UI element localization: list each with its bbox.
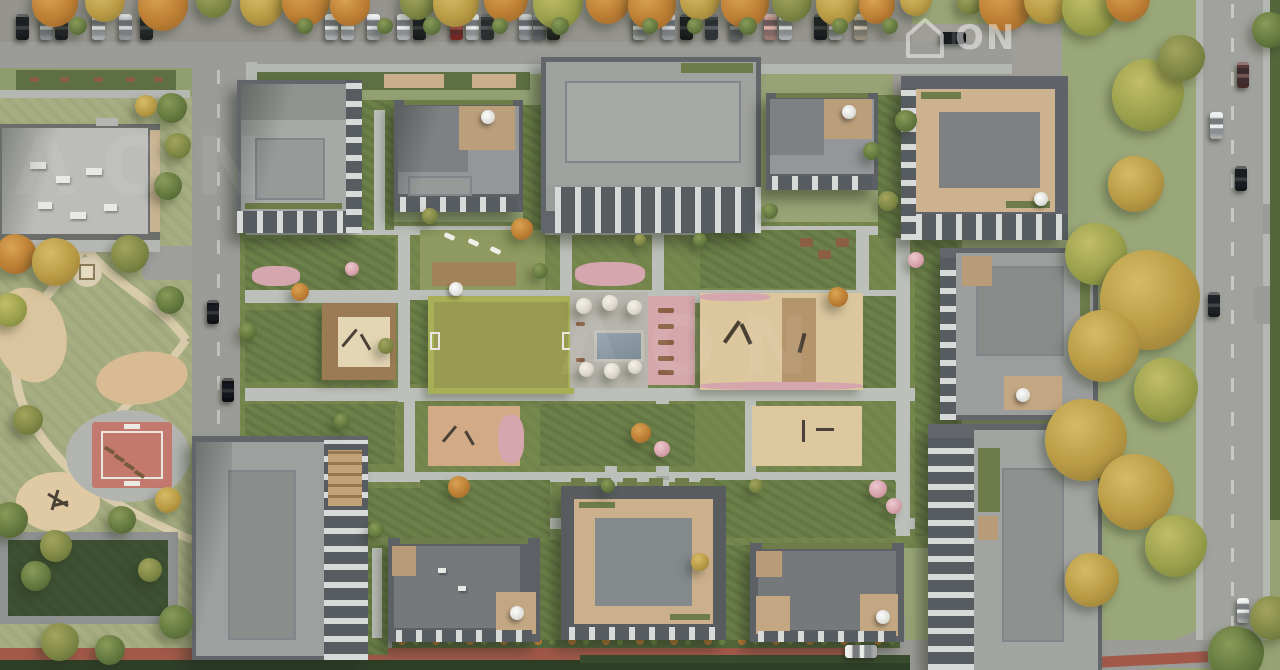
roof-terrace: [978, 516, 998, 540]
roof-planters: [762, 543, 892, 549]
building-northeast-tower: [901, 76, 1068, 240]
parasol: [510, 606, 524, 620]
gap-garden: [523, 105, 541, 230]
roof-terrace-garden: [978, 448, 1000, 512]
planter-box: [836, 238, 849, 247]
sandbox: [80, 265, 94, 279]
roof-dark: [595, 518, 692, 606]
court-goal: [124, 481, 140, 486]
building-north-b: [766, 93, 878, 190]
tree: [1252, 12, 1280, 48]
hvac-unit: [70, 212, 86, 219]
mini-goal: [430, 332, 440, 350]
play-equipment: [464, 430, 475, 445]
play-equipment: [442, 425, 457, 442]
car: [1237, 62, 1249, 88]
balcony-wood: [328, 450, 362, 506]
garden-bed: [700, 230, 856, 288]
roof-vent: [458, 586, 466, 591]
facade-south: [400, 197, 517, 212]
east-hedge-strip: [1270, 0, 1280, 520]
roof-terrace: [756, 596, 790, 634]
central-lawn: [428, 296, 574, 394]
roof-dark: [939, 112, 1040, 188]
garden-bed: [540, 404, 695, 466]
roof-terrace: [1004, 376, 1062, 410]
watermark-tile: ΛΟΝ: [14, 120, 289, 213]
garden-bed: [420, 480, 550, 514]
bench: [94, 77, 103, 82]
ring-plants: [921, 92, 961, 99]
car: [222, 378, 234, 402]
flower-bed: [498, 415, 524, 463]
roof-shadow: [398, 106, 448, 194]
car: [1237, 598, 1249, 623]
car: [119, 14, 132, 40]
roof-planters: [404, 100, 513, 105]
facade-south: [396, 630, 532, 642]
watermark-text: ON: [955, 18, 1016, 58]
roof-planters: [571, 478, 716, 486]
bench: [154, 77, 163, 82]
car: [397, 14, 410, 40]
sand-playground-se: [752, 406, 862, 466]
bench: [60, 77, 69, 82]
roof-inset: [228, 470, 296, 640]
building-north-a: [394, 100, 523, 212]
gap-path: [374, 110, 385, 230]
courtyard-path: [652, 226, 664, 296]
ring-plants: [579, 502, 615, 508]
car: [1208, 292, 1220, 317]
roof-vent: [438, 568, 446, 573]
roof-dark: [770, 99, 824, 155]
court-goal: [124, 424, 140, 429]
watermark-tile: ΛΟΝ: [560, 300, 835, 393]
street-hedge-row: [16, 70, 176, 90]
roof-shadow: [196, 442, 232, 656]
car: [1235, 166, 1247, 191]
courtyard-path: [398, 226, 410, 402]
roof-planters: [681, 63, 753, 73]
wood-deck: [432, 262, 516, 286]
flower-bed: [252, 266, 300, 286]
car: [16, 14, 29, 40]
roof-inset: [565, 81, 741, 163]
bench: [126, 77, 135, 82]
courtyard-path: [560, 226, 572, 296]
roof-planters: [400, 538, 528, 544]
parasol: [1034, 192, 1048, 206]
building-southwest-tower: [192, 436, 368, 660]
facade-west: [940, 258, 956, 420]
building-north-main: [541, 57, 761, 233]
gap-path: [372, 548, 382, 638]
car: [519, 14, 532, 40]
parasol: [1016, 388, 1030, 402]
facade-south: [237, 211, 346, 233]
facade-south: [758, 631, 896, 642]
car: [764, 14, 777, 40]
courtyard-path: [404, 396, 415, 482]
east-street-dashes: [1231, 4, 1234, 640]
ground-terraces: [384, 74, 444, 88]
ground-terraces: [472, 74, 516, 88]
gap-garden: [540, 540, 561, 640]
planter-box: [818, 250, 831, 259]
garden-bed: [700, 480, 895, 538]
watermark: ON: [903, 16, 1016, 60]
car: [207, 300, 219, 324]
play-equipment: [802, 420, 805, 442]
flower-bed: [575, 262, 645, 286]
roof-terrace: [392, 546, 416, 576]
parasol: [449, 282, 463, 296]
roof-terrace: [756, 551, 782, 577]
roof-planters: [776, 93, 868, 98]
garden-bed: [862, 296, 896, 388]
garden-bed: [410, 300, 428, 384]
garden-bed: [245, 310, 321, 382]
courtyard-path: [896, 236, 910, 536]
planter-box: [800, 238, 813, 247]
gap-garden: [726, 545, 750, 640]
roof-terrace: [962, 256, 992, 286]
ring-plants: [670, 614, 710, 620]
building-south-b: [750, 543, 904, 642]
facade-south: [772, 176, 872, 190]
aerial-site-render: ΛΟΝ ΛΟΝ ON: [0, 0, 1280, 670]
facade-south: [569, 627, 718, 640]
car: [1210, 112, 1223, 139]
parasol: [481, 110, 495, 124]
roof-inset: [1002, 468, 1064, 642]
car: [845, 645, 877, 658]
bench: [30, 77, 39, 82]
facade-east: [346, 80, 362, 233]
watermark-house-icon: [903, 16, 947, 60]
sand-playground-sw: [428, 406, 520, 466]
facade-west: [928, 438, 974, 670]
play-equipment: [816, 428, 834, 431]
building-south-a: [388, 538, 540, 642]
parasol: [842, 105, 856, 119]
facade-south: [916, 214, 1068, 240]
parasol: [876, 610, 890, 624]
facade-south: [555, 187, 761, 233]
